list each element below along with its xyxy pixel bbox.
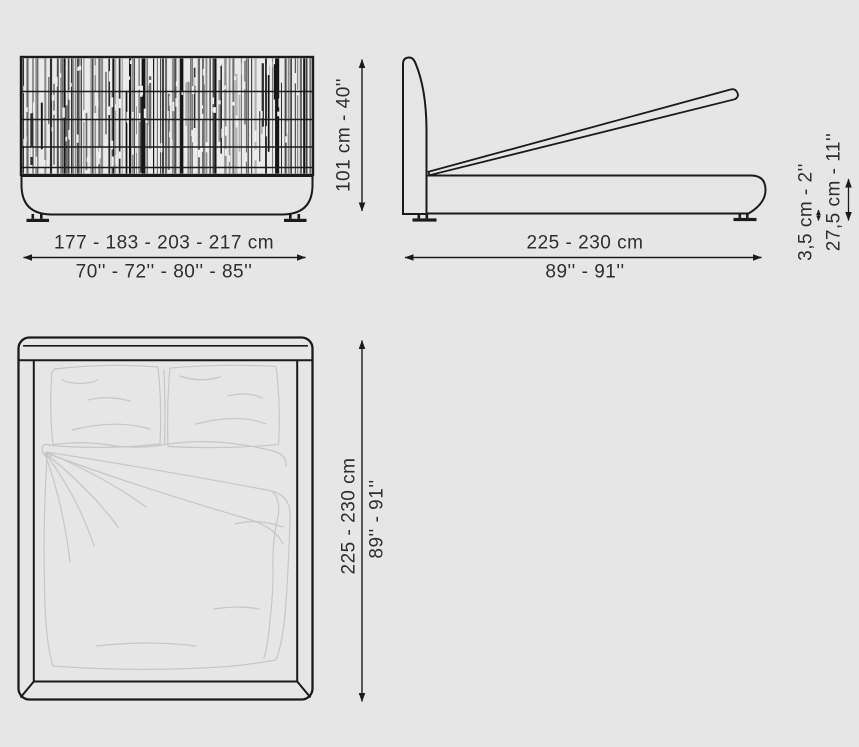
top-view-drawing — [19, 338, 363, 702]
pillow-right — [164, 365, 279, 447]
feet-height-label: 3,5 cm - 2'' — [797, 163, 816, 261]
front-height-label: 101 cm - 40'' — [335, 78, 354, 192]
front-width-inches-label: 70'' - 72'' - 80'' - 85'' — [76, 263, 253, 282]
storage-lid — [429, 89, 738, 175]
side-view-drawing — [403, 58, 849, 258]
bed-foot-side-right — [734, 214, 757, 222]
duvet — [42, 442, 290, 670]
storage-height-label: 27,5 cm - 11'' — [825, 133, 844, 251]
headboard-side — [403, 58, 427, 215]
technical-drawing — [0, 0, 859, 747]
pillow-left — [51, 365, 161, 447]
frame-corner-chamfers — [21, 682, 311, 698]
mattress-outline — [34, 360, 297, 681]
top-length-inches-label: 89'' - 91'' — [368, 479, 387, 558]
bed-foot-front-left — [27, 214, 50, 222]
bed-dimensions-diagram: 177 - 183 - 203 - 217 cm 70'' - 72'' - 8… — [0, 0, 859, 747]
front-view-drawing — [21, 57, 362, 258]
side-length-inches-label: 89'' - 91'' — [545, 263, 624, 282]
top-length-cm-label: 225 - 230 cm — [340, 458, 359, 575]
bed-base-side — [427, 176, 766, 214]
bed-foot-side-left — [413, 214, 437, 222]
front-width-cm-label: 177 - 183 - 203 - 217 cm — [54, 234, 274, 253]
bed-base-front — [22, 176, 313, 215]
side-length-cm-label: 225 - 230 cm — [527, 234, 644, 253]
